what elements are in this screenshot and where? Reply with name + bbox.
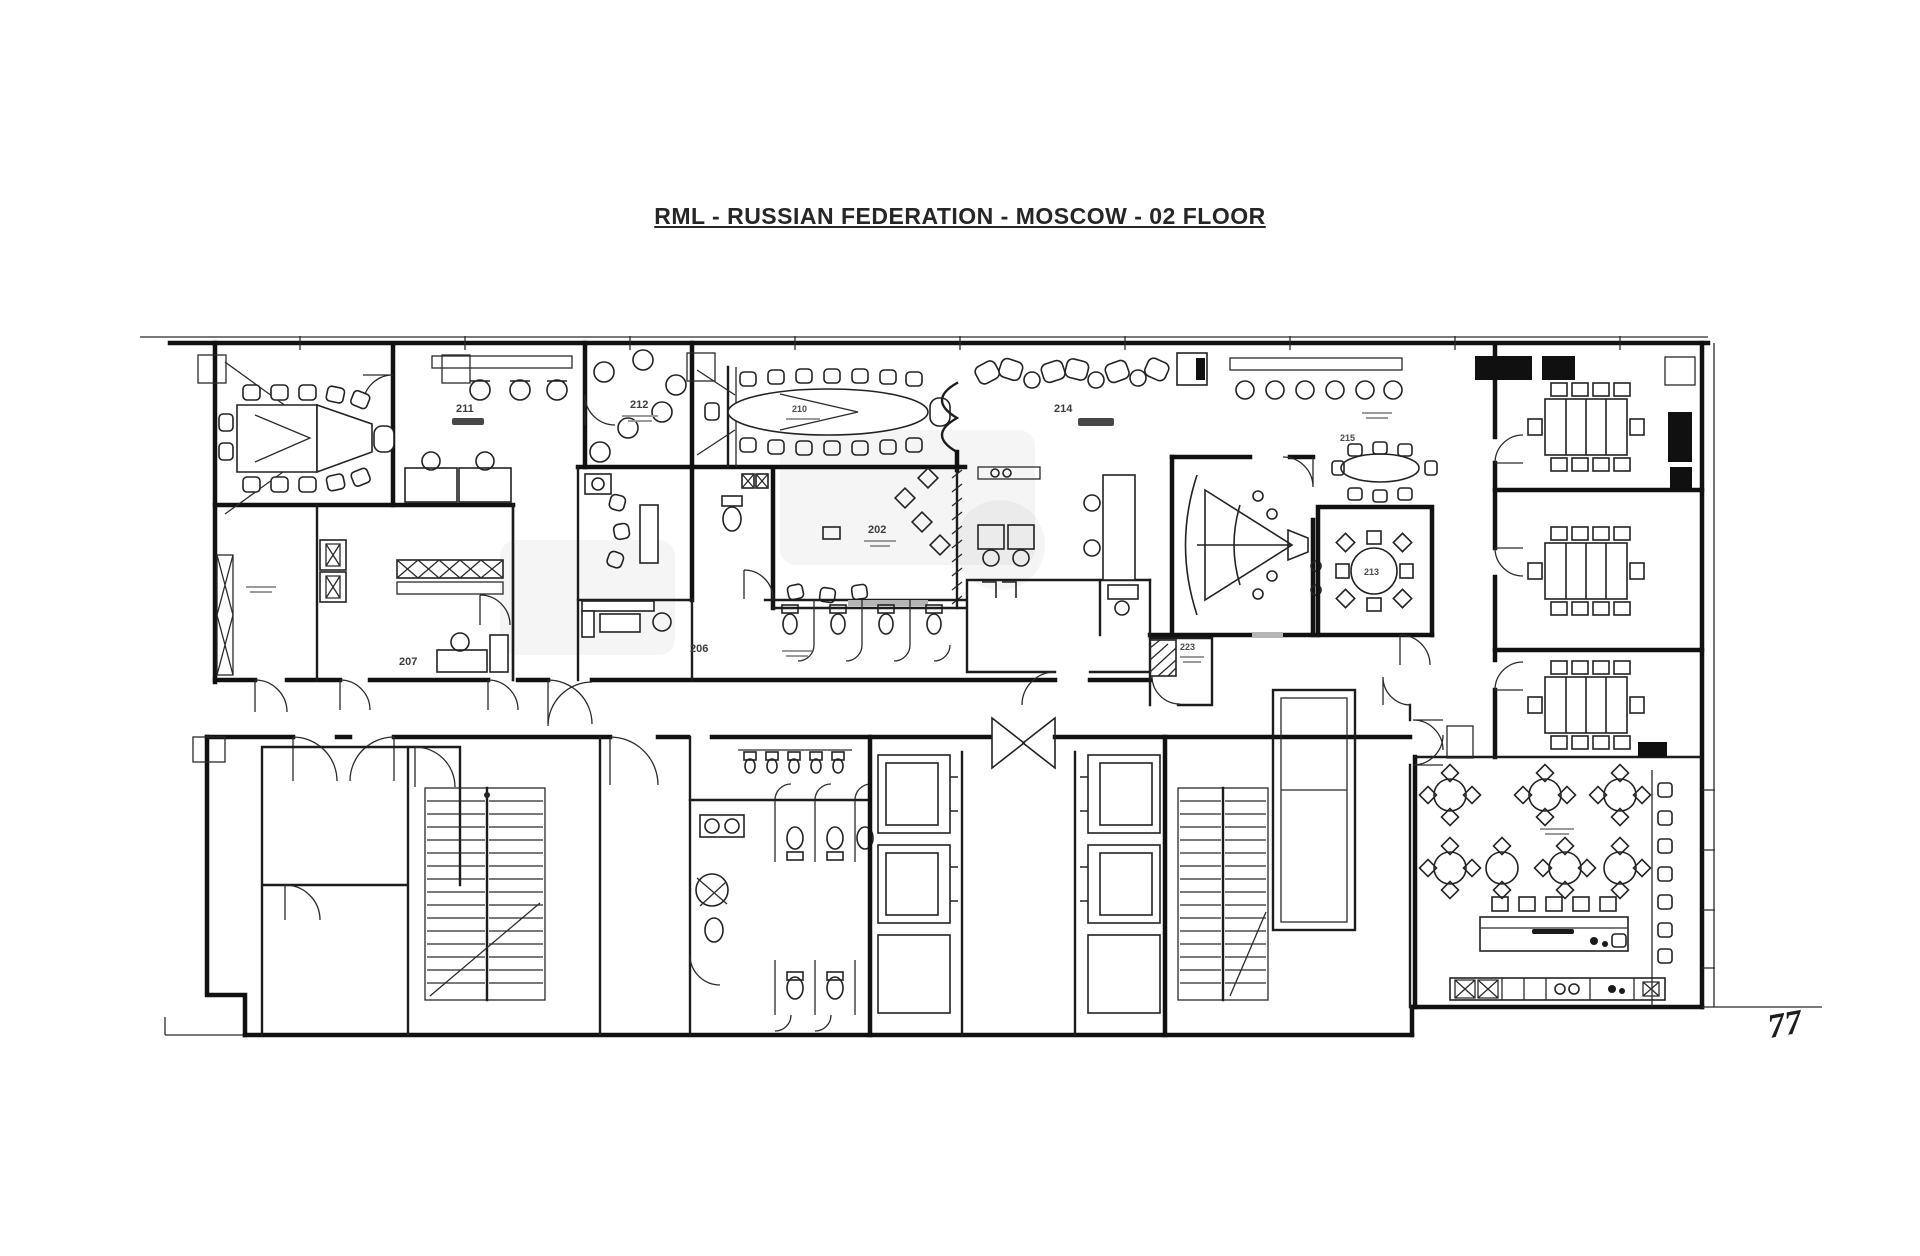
room-223: 223 [1150,638,1212,705]
room-label-211: 211 [456,403,474,415]
meeting-point-215: 215 [1332,412,1437,502]
elevator-core [870,718,1165,1035]
presentation-room [1172,457,1321,635]
room-label-210: 210 [792,404,807,414]
room-label-214: 214 [1054,403,1073,415]
quiet-rooms [967,580,1150,705]
room-label-223: 223 [1180,642,1195,652]
stair-west-block [262,737,600,1035]
room-label-207: 207 [399,656,417,668]
wc-men-core [690,737,873,1035]
section-mark: 77 [1765,1003,1807,1046]
room-label-215: 215 [1340,433,1355,443]
drawing-sheet: RML - RUSSIAN FEDERATION - MOSCOW - 02 F… [0,0,1920,1256]
room-label-213: 213 [1364,567,1379,577]
right-meeting-rooms [1475,347,1702,757]
room-213: 213 [1318,507,1432,665]
lower-left-rooms: 207 [217,505,513,680]
cafeteria [1383,677,1700,1007]
room-label-202: 202 [868,524,886,536]
room-211: 211 [405,343,585,502]
floor-plan-canvas: 211 212 [0,0,1920,1256]
room-label-212: 212 [630,399,648,411]
room-label-206: 206 [690,643,708,655]
